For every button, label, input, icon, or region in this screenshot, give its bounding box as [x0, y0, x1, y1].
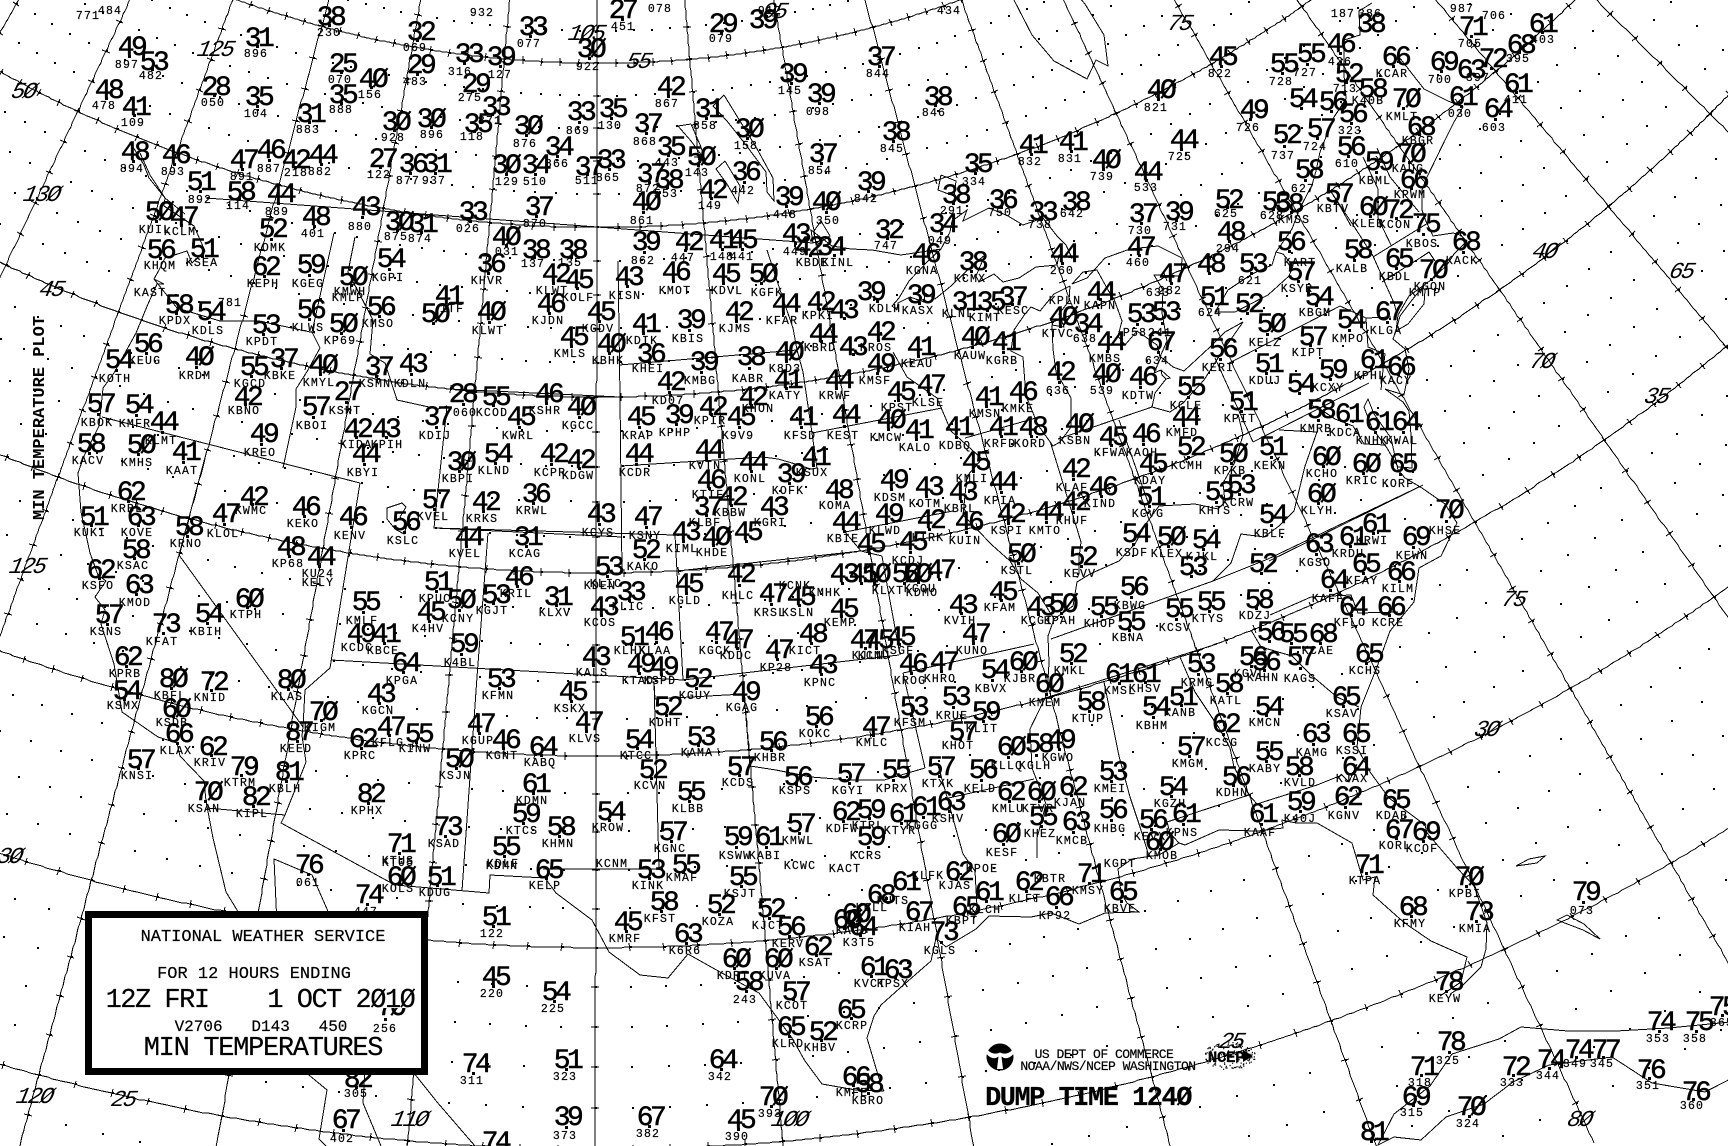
svg-text:218: 218: [284, 167, 308, 180]
svg-text:KSAD: KSAD: [428, 838, 460, 851]
svg-text:KFAY: KFAY: [1346, 575, 1378, 588]
svg-text:KPRC: KPRC: [344, 750, 376, 763]
svg-text:KCDR: KCDR: [619, 467, 651, 480]
svg-text:078: 078: [648, 3, 672, 16]
svg-text:624: 624: [1198, 307, 1222, 320]
svg-text:KBRD: KBRD: [804, 342, 836, 355]
svg-text:KLWT: KLWT: [472, 325, 504, 338]
svg-text:KEYW: KEYW: [1429, 993, 1461, 1006]
svg-text:893: 893: [161, 166, 185, 179]
svg-text:KMEI: KMEI: [1094, 783, 1126, 796]
svg-text:844: 844: [866, 68, 890, 81]
svg-text:KFLO: KFLO: [1334, 617, 1366, 630]
svg-text:KDLH: KDLH: [869, 303, 901, 316]
svg-text:KEAU: KEAU: [901, 358, 933, 371]
svg-text:KLXV: KLXV: [539, 607, 571, 620]
svg-text:484: 484: [98, 5, 122, 18]
svg-text:KMRB: KMRB: [1300, 423, 1332, 436]
svg-text:KBYI: KBYI: [347, 467, 379, 480]
svg-text:887: 887: [257, 163, 281, 176]
svg-text:KERI: KERI: [1202, 362, 1234, 375]
svg-text:365: 365: [1710, 1017, 1728, 1030]
svg-text:KFMN: KFMN: [482, 690, 514, 703]
svg-text:KTUP: KTUP: [1072, 713, 1104, 726]
svg-text:KP68: KP68: [272, 558, 304, 571]
svg-text:353: 353: [1646, 1033, 1670, 1046]
svg-text:KPIT: KPIT: [1224, 413, 1256, 426]
svg-text:KOZA: KOZA: [702, 916, 734, 929]
svg-text:402: 402: [330, 1133, 354, 1146]
svg-text:KSDF: KSDF: [1116, 547, 1148, 560]
svg-text:KACT: KACT: [829, 863, 861, 876]
svg-text:865: 865: [596, 172, 620, 185]
svg-text:846: 846: [922, 107, 946, 120]
svg-text:KLBB: KLBB: [672, 803, 704, 816]
svg-text:KCRE: KCRE: [1372, 617, 1404, 630]
svg-text:937: 937: [422, 175, 446, 188]
svg-text:882: 882: [308, 166, 332, 179]
svg-text:KPUC: KPUC: [419, 593, 451, 606]
svg-text:883: 883: [296, 124, 320, 137]
svg-text:KBIE: KBIE: [827, 533, 859, 546]
svg-text:KMEM: KMEM: [1029, 697, 1061, 710]
svg-text:KALB: KALB: [1336, 263, 1368, 276]
svg-text:350: 350: [816, 215, 840, 228]
svg-text:482: 482: [139, 70, 163, 83]
svg-text:896: 896: [420, 129, 444, 142]
svg-text:897: 897: [115, 59, 139, 72]
svg-text:KBIH: KBIH: [190, 626, 222, 639]
svg-text:KSPD: KSPD: [644, 675, 676, 688]
svg-text:079: 079: [709, 33, 733, 46]
svg-text:706: 706: [1482, 10, 1506, 23]
svg-text:739: 739: [1090, 171, 1114, 184]
svg-text:KSLN: KSLN: [782, 607, 814, 620]
svg-text:KSMX: KSMX: [107, 700, 139, 713]
svg-text:342: 342: [708, 1071, 732, 1084]
svg-text:KOKC: KOKC: [799, 728, 831, 741]
svg-text:731: 731: [1163, 221, 1187, 234]
svg-text:KDHN: KDHN: [1216, 787, 1248, 800]
svg-text:KLOL: KLOL: [207, 528, 239, 541]
svg-text:KINL: KINL: [822, 257, 854, 270]
svg-text:345: 345: [1590, 1058, 1614, 1071]
svg-text:KCXY: KCXY: [1312, 382, 1344, 395]
svg-text:323: 323: [553, 1071, 577, 1084]
svg-text:KGJT: KGJT: [476, 605, 508, 618]
svg-text:KRDM: KRDM: [179, 370, 211, 383]
svg-text:114: 114: [226, 200, 250, 213]
svg-text:KHLC: KHLC: [722, 590, 754, 603]
svg-text:KFST: KFST: [644, 913, 676, 926]
svg-text:747: 747: [874, 240, 898, 253]
svg-text:109: 109: [121, 117, 145, 130]
svg-text:821: 821: [1144, 102, 1168, 115]
svg-text:KBML: KBML: [1359, 175, 1391, 188]
svg-text:KLSE: KLSE: [912, 397, 944, 410]
svg-text:KMPO: KMPO: [1332, 333, 1364, 346]
svg-text:842: 842: [854, 193, 878, 206]
svg-text:KGUY: KGUY: [679, 690, 711, 703]
svg-text:305: 305: [344, 1088, 368, 1101]
svg-text:KELY: KELY: [302, 577, 334, 590]
svg-text:KSPI: KSPI: [991, 525, 1023, 538]
svg-text:KAHN: KAHN: [1247, 672, 1279, 685]
svg-text:KDHT: KDHT: [649, 717, 681, 730]
svg-text:KMRF: KMRF: [609, 933, 641, 946]
svg-text:060: 060: [453, 407, 477, 420]
svg-text:5Ø: 5Ø: [421, 300, 450, 331]
svg-text:KP92: KP92: [1039, 910, 1071, 923]
svg-text:KBRO: KBRO: [852, 1095, 884, 1108]
svg-text:KMSO: KMSO: [362, 318, 394, 331]
svg-text:KMOD: KMOD: [119, 597, 151, 610]
svg-text:KSMN: KSMN: [359, 378, 391, 391]
svg-text:KRFD: KRFD: [984, 438, 1016, 451]
svg-text:KCRW: KCRW: [1222, 497, 1254, 510]
svg-text:KOLS: KOLS: [382, 883, 414, 896]
svg-text:156: 156: [358, 89, 382, 102]
svg-text:724: 724: [1303, 141, 1327, 154]
svg-text:KWAL: KWAL: [1386, 435, 1418, 448]
svg-text:483: 483: [403, 76, 427, 89]
svg-text:922: 922: [576, 61, 600, 74]
svg-text:603: 603: [1482, 122, 1506, 135]
svg-text:56: 56: [1277, 228, 1305, 259]
svg-text:KMLU: KMLU: [992, 803, 1024, 816]
svg-text:KISN: KISN: [609, 290, 641, 303]
svg-text:KFSM: KFSM: [894, 717, 926, 730]
svg-text:127: 127: [488, 69, 512, 82]
svg-text:KGPT: KGPT: [1104, 858, 1136, 871]
svg-text:KCWC: KCWC: [784, 860, 816, 873]
svg-text:KHSE: KHSE: [1429, 525, 1461, 538]
svg-text:KDUG: KDUG: [419, 887, 451, 900]
svg-text:KANB: KANB: [1164, 707, 1196, 720]
svg-text:533: 533: [1134, 182, 1158, 195]
svg-text:KELZ: KELZ: [1249, 337, 1281, 350]
svg-text:750: 750: [988, 207, 1012, 220]
svg-text:KBOI: KBOI: [296, 420, 328, 433]
svg-text:KDEN: KDEN: [584, 580, 616, 593]
svg-text:P58: P58: [1123, 327, 1147, 340]
svg-text:KMLS: KMLS: [554, 348, 586, 361]
svg-text:149: 149: [698, 200, 722, 213]
svg-text:KGRB: KGRB: [986, 355, 1018, 368]
svg-text:KLXT: KLXT: [872, 585, 904, 598]
svg-text:KP28: KP28: [760, 662, 792, 675]
svg-text:KPNC: KPNC: [804, 677, 836, 690]
svg-text:KCON: KCON: [1379, 219, 1411, 232]
svg-text:KMLC: KMLC: [856, 737, 888, 750]
svg-text:220: 220: [480, 988, 504, 1001]
svg-text:KUKI: KUKI: [74, 527, 106, 540]
svg-text:875: 875: [384, 231, 408, 244]
svg-text:KACV: KACV: [72, 455, 104, 468]
svg-text:MIN TEMPERATURE PLOT: MIN TEMPERATURE PLOT: [31, 316, 50, 520]
svg-text:KSHR: KSHR: [529, 405, 561, 418]
svg-text:403: 403: [1531, 34, 1555, 47]
svg-text:KMSS: KMSS: [1278, 214, 1310, 227]
svg-text:KAAF: KAAF: [1244, 827, 1276, 840]
svg-text:KGLD: KGLD: [669, 595, 701, 608]
svg-text:098: 098: [806, 106, 830, 119]
svg-text:KMHS: KMHS: [121, 457, 153, 470]
svg-text:KRIC: KRIC: [1346, 475, 1378, 488]
svg-text:KCAG: KCAG: [509, 548, 541, 561]
svg-text:451: 451: [611, 21, 635, 34]
svg-text:069: 069: [403, 42, 427, 55]
svg-text:KBNA: KBNA: [1112, 632, 1144, 645]
svg-text:KEKO: KEKO: [287, 518, 319, 531]
svg-text:KCSG: KCSG: [1206, 737, 1238, 750]
svg-text:KHDE: KHDE: [696, 547, 728, 560]
svg-text:KABI: KABI: [749, 850, 781, 863]
svg-text:KSEA: KSEA: [186, 257, 218, 270]
svg-text:315: 315: [1400, 1107, 1424, 1120]
svg-text:KGEG: KGEG: [292, 278, 324, 291]
svg-text:KFMY: KFMY: [1394, 918, 1426, 931]
svg-text:KBGM: KBGM: [1299, 307, 1331, 320]
svg-text:45: 45: [857, 530, 886, 561]
svg-text:KHBR: KHBR: [754, 752, 786, 765]
svg-text:KP69: KP69: [324, 335, 356, 348]
svg-text:KLIC: KLIC: [612, 601, 644, 614]
svg-text:KJLN: KJLN: [852, 650, 884, 663]
svg-text:866: 866: [545, 158, 569, 171]
svg-text:050: 050: [201, 97, 225, 110]
svg-text:KGNT: KGNT: [486, 750, 518, 763]
svg-text:894: 894: [120, 163, 144, 176]
svg-text:122: 122: [367, 169, 391, 182]
svg-text:KHMN: KHMN: [542, 838, 574, 851]
svg-text:122: 122: [480, 928, 504, 941]
svg-text:53: 53: [1152, 298, 1181, 329]
svg-text:118: 118: [460, 131, 484, 144]
svg-text:12Z FRI 1 OCT 2Ø1Ø: 12Z FRI 1 OCT 2Ø1Ø: [106, 986, 416, 1016]
svg-text:KDMN: KDMN: [486, 860, 518, 873]
svg-text:FOR 12 HOURS ENDING: FOR 12 HOURS ENDING: [157, 965, 351, 984]
svg-text:030: 030: [1448, 108, 1472, 121]
svg-text:KSBN: KSBN: [1059, 435, 1091, 448]
svg-text:KVEL: KVEL: [449, 548, 481, 561]
svg-text:395: 395: [1506, 53, 1530, 66]
svg-text:K4BL: K4BL: [444, 657, 476, 670]
svg-text:460: 460: [1126, 257, 1150, 270]
svg-text:KCSV: KCSV: [1159, 622, 1191, 635]
svg-text:832: 832: [1018, 156, 1042, 169]
svg-text:129: 129: [495, 176, 519, 189]
svg-text:KLFT: KLFT: [1009, 893, 1041, 906]
svg-text:KBOK: KBOK: [81, 417, 113, 430]
svg-text:311: 311: [460, 1075, 484, 1088]
svg-text:KBLH: KBLH: [269, 783, 301, 796]
svg-text:KGAG: KGAG: [726, 702, 758, 715]
svg-text:45: 45: [734, 518, 763, 549]
svg-text:75: 75: [1412, 210, 1441, 241]
svg-text:876: 876: [513, 138, 537, 151]
svg-text:KLAX: KLAX: [160, 745, 192, 758]
svg-text:KENV: KENV: [334, 530, 366, 543]
svg-text:KSAT: KSAT: [799, 957, 831, 970]
svg-text:KIML: KIML: [666, 543, 698, 556]
svg-text:KMFR: KMFR: [119, 418, 151, 431]
svg-text:928: 928: [381, 132, 405, 145]
svg-text:225: 225: [541, 1003, 565, 1016]
svg-text:KALO: KALO: [899, 442, 931, 455]
svg-text:48: 48: [1197, 250, 1225, 281]
svg-text:KCRS: KCRS: [850, 850, 882, 863]
svg-text:KEVV: KEVV: [1064, 568, 1096, 581]
svg-text:KBPI: KBPI: [442, 473, 474, 486]
svg-text:KHQM: KHQM: [144, 260, 176, 273]
svg-text:932: 932: [470, 7, 494, 20]
svg-text:831: 831: [1058, 153, 1082, 166]
svg-text:KDLS: KDLS: [192, 325, 224, 338]
svg-text:54: 54: [1289, 85, 1318, 116]
svg-text:KMTP: KMTP: [1409, 287, 1441, 300]
svg-text:KATY: KATY: [769, 390, 801, 403]
svg-text:KAUW: KAUW: [954, 350, 986, 363]
svg-text:KCVN: KCVN: [634, 780, 666, 793]
svg-text:KROW: KROW: [592, 822, 624, 835]
svg-text:44: 44: [832, 401, 861, 432]
svg-text:KHBV: KHBV: [804, 1042, 836, 1055]
svg-text:KDUJ: KDUJ: [1249, 375, 1281, 388]
svg-text:K4HV: K4HV: [412, 623, 444, 636]
svg-text:KHEZ: KHEZ: [1024, 828, 1056, 841]
svg-text:KFAM: KFAM: [984, 602, 1016, 615]
svg-text:KCMX: KCMX: [954, 273, 986, 286]
svg-text:KPSX: KPSX: [877, 978, 909, 991]
svg-text:KSFO: KSFO: [82, 580, 114, 593]
svg-text:026: 026: [456, 223, 480, 236]
svg-text:KLVS: KLVS: [569, 733, 601, 746]
svg-text:KCOD: KCOD: [476, 407, 508, 420]
svg-text:858: 858: [693, 120, 717, 133]
svg-text:KMAF: KMAF: [666, 872, 698, 885]
svg-text:KPDX: KPDX: [159, 315, 191, 328]
svg-text:KFWA: KFWA: [1094, 447, 1126, 460]
svg-text:KUIN: KUIN: [949, 535, 981, 548]
svg-text:256: 256: [373, 1023, 397, 1036]
svg-text:KAAT: KAAT: [166, 465, 198, 478]
svg-text:KT05: KT05: [382, 857, 414, 870]
svg-text:642: 642: [1060, 208, 1084, 221]
svg-text:KMCB: KMCB: [1056, 835, 1088, 848]
svg-text:KREO: KREO: [244, 447, 276, 460]
svg-text:360: 360: [1680, 1100, 1704, 1113]
svg-text:KPIR: KPIR: [694, 415, 726, 428]
svg-text:KSWW: KSWW: [719, 850, 751, 863]
svg-text:KCOF: KCOF: [1406, 843, 1438, 856]
svg-text:81: 81: [1360, 1118, 1389, 1146]
svg-text:KAMA: KAMA: [681, 747, 713, 760]
svg-text:854: 854: [808, 165, 832, 178]
svg-text:870: 870: [523, 218, 547, 231]
svg-text:344: 344: [1536, 1070, 1560, 1083]
svg-text:KMOB: KMOB: [1146, 850, 1178, 863]
svg-text:145: 145: [778, 85, 802, 98]
svg-text:073: 073: [1570, 905, 1594, 918]
svg-text:KGPI: KGPI: [372, 272, 404, 285]
svg-text:KHBG: KHBG: [1094, 823, 1126, 836]
svg-text:KPAH: KPAH: [1044, 615, 1076, 628]
svg-text:874: 874: [408, 233, 432, 246]
svg-text:KCOT: KCOT: [776, 1000, 808, 1013]
svg-text:KMYL: KMYL: [303, 377, 335, 390]
svg-text:KABQ: KABQ: [524, 757, 556, 770]
svg-text:393: 393: [758, 1108, 782, 1121]
svg-text:KBHM: KBHM: [1136, 720, 1168, 733]
svg-text:KINW: KINW: [399, 743, 431, 756]
svg-text:434: 434: [937, 5, 961, 18]
svg-text:351: 351: [1636, 1080, 1660, 1093]
svg-text:636: 636: [1046, 385, 1070, 398]
svg-text:NOAA/NWS/NCEP WASHINGTON: NOAA/NWS/NCEP WASHINGTON: [1020, 1059, 1195, 1074]
svg-text:158: 158: [734, 140, 758, 153]
svg-text:737: 737: [1271, 150, 1295, 163]
svg-text:KBLF: KBLF: [1254, 528, 1286, 541]
svg-text:KEUG: KEUG: [129, 355, 161, 368]
svg-text:KSHV: KSHV: [932, 813, 964, 826]
svg-text:KGCC: KGCC: [562, 420, 594, 433]
svg-text:KMCN: KMCN: [1249, 717, 1281, 730]
svg-text:KSLC: KSLC: [387, 535, 419, 548]
svg-text:53: 53: [1179, 553, 1208, 584]
svg-text:KJAS: KJAS: [939, 880, 971, 893]
svg-text:896: 896: [244, 48, 268, 61]
svg-text:KEKN: KEKN: [1254, 460, 1286, 473]
svg-text:KFSD: KFSD: [784, 430, 816, 443]
svg-text:KPHP: KPHP: [659, 427, 691, 440]
svg-text:KBNO: KBNO: [228, 405, 260, 418]
svg-text:KRIV: KRIV: [194, 757, 226, 770]
svg-text:KLND: KLND: [478, 465, 510, 478]
svg-text:621: 621: [1238, 275, 1262, 288]
svg-text:KABY: KABY: [1249, 763, 1281, 776]
svg-text:077: 077: [517, 38, 541, 51]
svg-text:KDMO: KDMO: [906, 587, 938, 600]
svg-text:74: 74: [482, 1128, 511, 1146]
svg-text:KORD: KORD: [1014, 438, 1046, 451]
svg-text:KASX: KASX: [902, 305, 934, 318]
svg-text:43: 43: [352, 193, 381, 224]
svg-text:KDTW: KDTW: [1122, 390, 1154, 403]
svg-text:KBTV: KBTV: [1317, 203, 1349, 216]
svg-text:KFAT: KFAT: [146, 636, 178, 649]
svg-text:373: 373: [553, 1130, 577, 1143]
svg-text:NCEP: NCEP: [1208, 1049, 1244, 1067]
svg-text:324: 324: [1456, 1118, 1480, 1131]
svg-text:333: 333: [1500, 1077, 1524, 1090]
svg-text:K9V9: K9V9: [722, 430, 754, 443]
svg-text:KLGA: KLGA: [1370, 325, 1402, 338]
svg-text:KTPA: KTPA: [1349, 875, 1381, 888]
svg-text:KTPH: KTPH: [230, 609, 262, 622]
svg-text:KTVC: KTVC: [1042, 328, 1074, 341]
svg-text:KVEL: KVEL: [417, 511, 449, 524]
svg-text:KSNS: KSNS: [90, 626, 122, 639]
svg-text:KGNA: KGNA: [906, 265, 938, 278]
svg-text:KSTL: KSTL: [1001, 565, 1033, 578]
svg-text:KMLP: KMLP: [332, 292, 364, 305]
svg-text:KRNO: KRNO: [170, 538, 202, 551]
svg-text:KMCW: KMCW: [870, 432, 902, 445]
svg-text:KIND: KIND: [1084, 498, 1116, 511]
svg-text:275: 275: [458, 92, 482, 105]
svg-text:DUMP TIME 124Ø: DUMP TIME 124Ø: [985, 1084, 1192, 1114]
